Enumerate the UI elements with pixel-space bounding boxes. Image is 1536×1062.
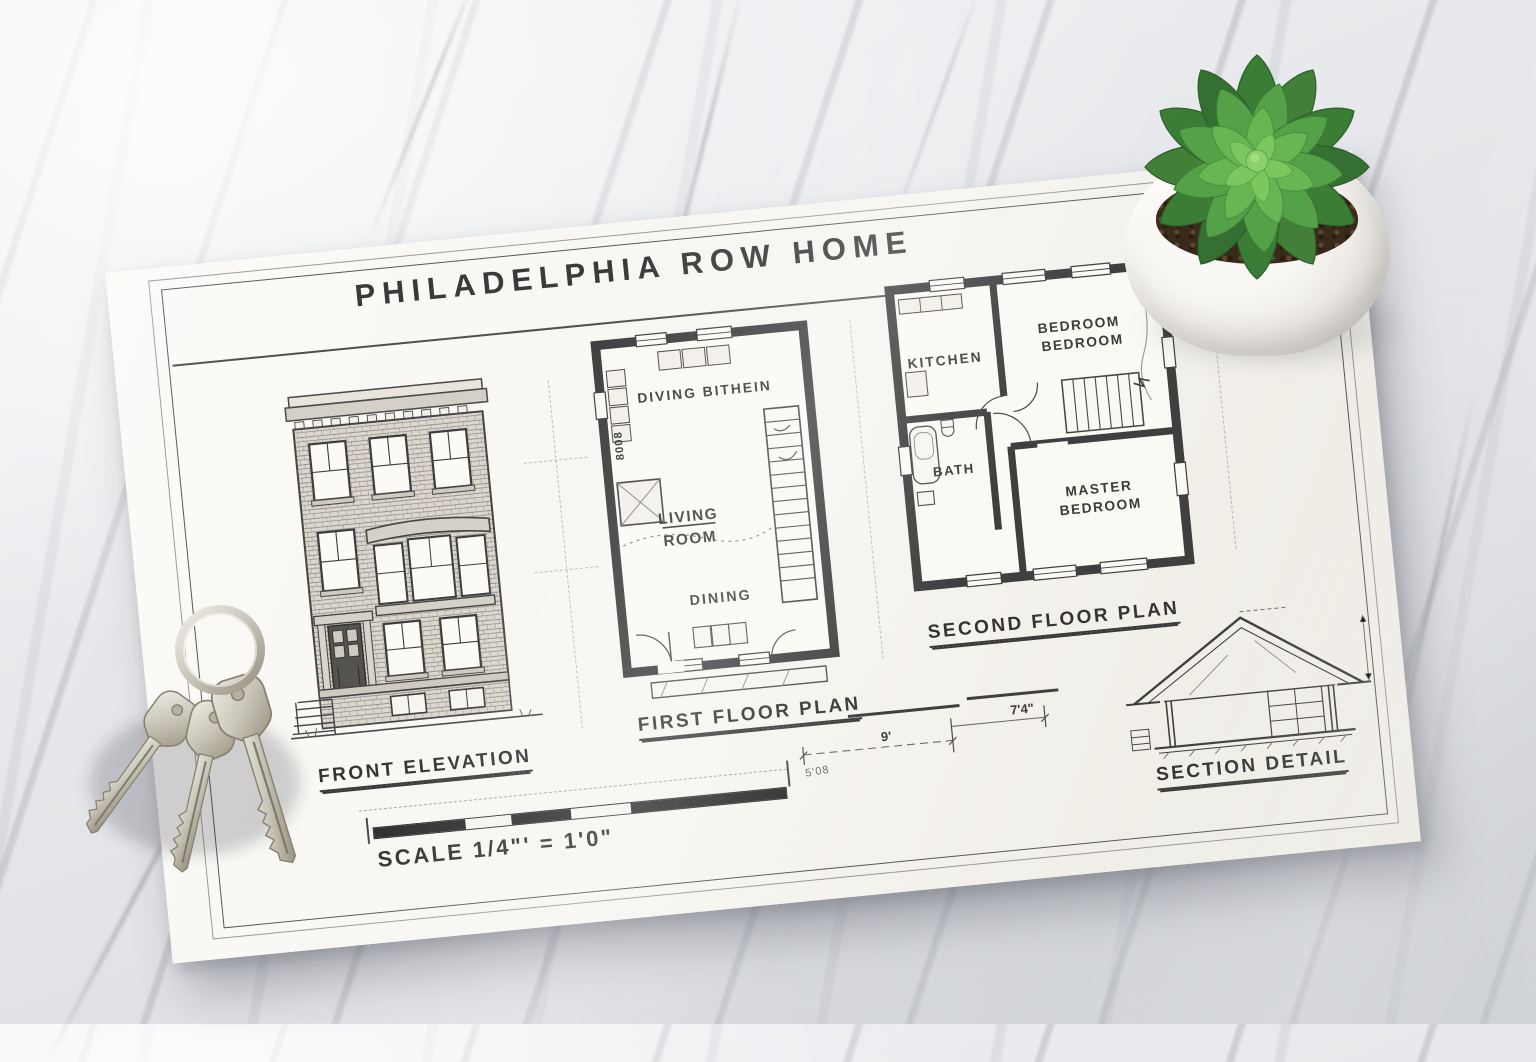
key-ring (180, 610, 260, 690)
marble-vein (364, 0, 479, 250)
first-floor-plan-drawing: 8008 DIVING BITHEIN LIVING (575, 309, 857, 711)
succulent-plant (1106, 22, 1408, 300)
dimension-label-9ft: 9' (880, 728, 892, 744)
dimension-label-7ft4: 7'4" (1010, 700, 1035, 717)
marble-countertop-scene: { "sheet": { "title": "PHILADELPHIA ROW … (0, 0, 1536, 1024)
section-detail-drawing (1111, 589, 1384, 764)
key-ring-with-three-keys (70, 588, 320, 888)
